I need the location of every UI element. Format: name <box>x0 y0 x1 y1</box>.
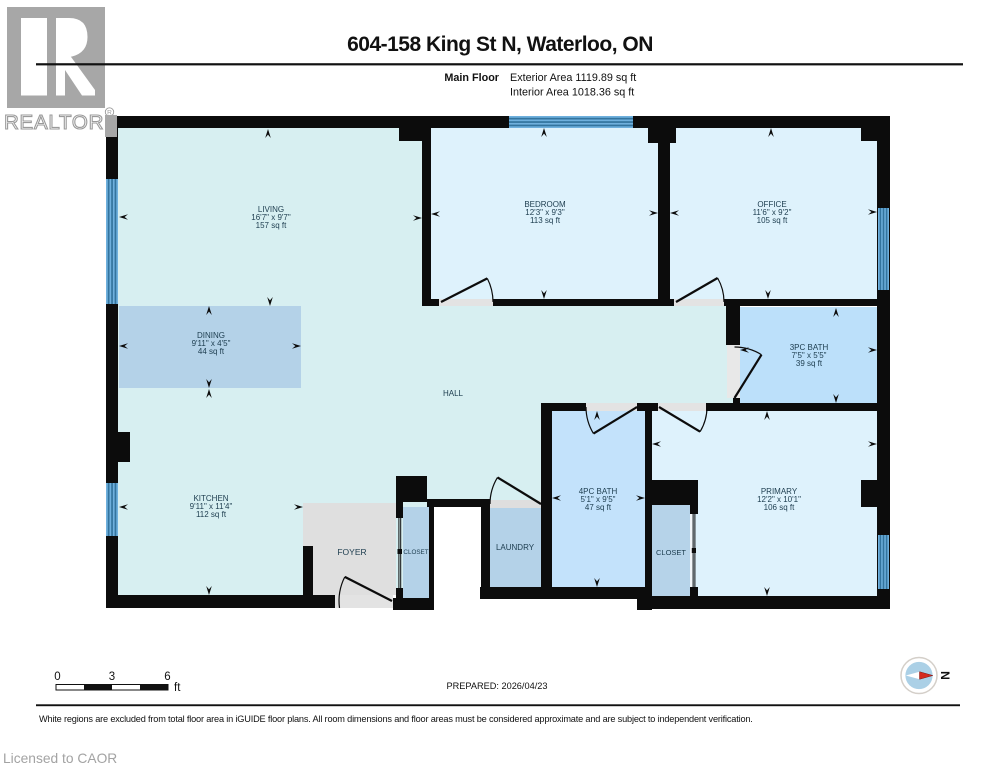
svg-text:44 sq ft: 44 sq ft <box>198 347 225 356</box>
svg-text:HALL: HALL <box>443 389 464 398</box>
svg-text:47 sq ft: 47 sq ft <box>585 503 612 512</box>
svg-text:6: 6 <box>164 671 170 683</box>
svg-text:FOYER: FOYER <box>337 547 366 557</box>
svg-text:157 sq ft: 157 sq ft <box>256 221 287 230</box>
svg-text:106 sq ft: 106 sq ft <box>764 503 795 512</box>
svg-text:CLOSET: CLOSET <box>403 549 428 556</box>
svg-text:3: 3 <box>109 671 115 683</box>
svg-text:39 sq ft: 39 sq ft <box>796 359 823 368</box>
svg-text:604-158 King St N, Waterloo, O: 604-158 King St N, Waterloo, ON <box>347 33 653 56</box>
svg-text:Licensed to CAOR: Licensed to CAOR <box>3 751 117 766</box>
svg-text:REALTOR: REALTOR <box>4 111 104 134</box>
svg-text:PREPARED: 2026/04/23: PREPARED: 2026/04/23 <box>447 681 548 691</box>
svg-text:0: 0 <box>54 671 60 683</box>
svg-text:White regions are excluded fro: White regions are excluded from total fl… <box>39 714 753 724</box>
svg-text:Main Floor: Main Floor <box>444 72 499 84</box>
svg-text:CLOSET: CLOSET <box>656 548 686 557</box>
svg-text:LAUNDRY: LAUNDRY <box>496 543 535 552</box>
svg-text:105 sq ft: 105 sq ft <box>757 216 788 225</box>
svg-text:113 sq ft: 113 sq ft <box>530 216 561 225</box>
svg-text:N: N <box>938 671 952 680</box>
svg-text:ft: ft <box>174 682 181 694</box>
svg-text:Interior Area 1018.36 sq ft: Interior Area 1018.36 sq ft <box>510 87 634 99</box>
svg-text:112 sq ft: 112 sq ft <box>196 510 227 519</box>
svg-text:Exterior Area 1119.89 sq ft: Exterior Area 1119.89 sq ft <box>510 72 636 84</box>
